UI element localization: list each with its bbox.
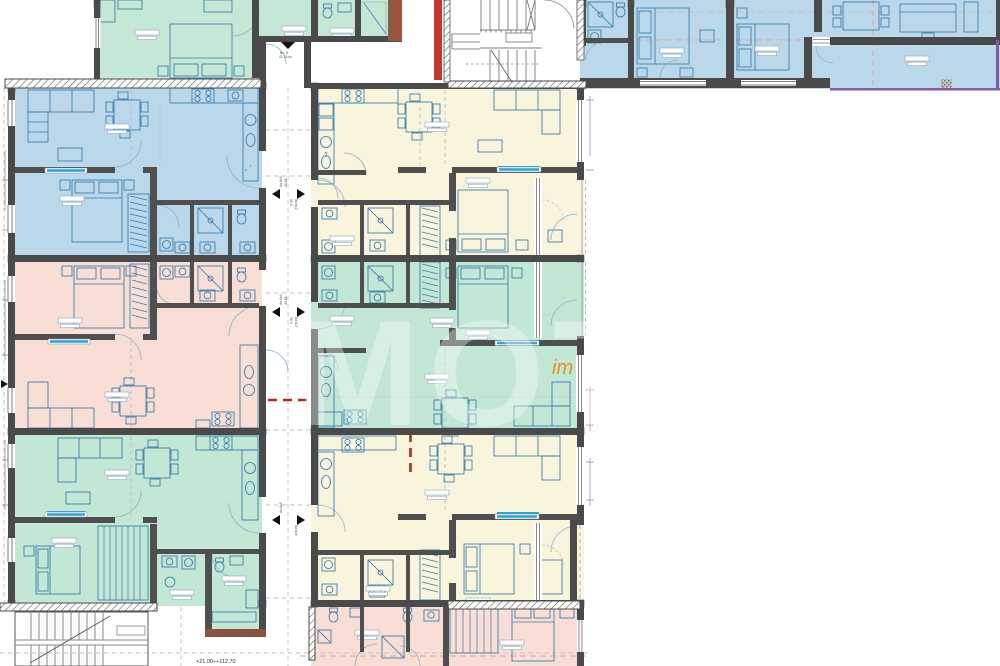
svg-text:41.38 м²: 41.38 м² (279, 55, 293, 59)
svg-text:Ап.№2: Ап.№2 (294, 199, 298, 210)
svg-text:MOT: MOT (295, 289, 652, 457)
svg-text:Ап.№9: Ап.№9 (294, 525, 298, 536)
svg-text:+21.00÷+112.70: +21.00÷+112.70 (196, 659, 236, 665)
svg-text:Ап.№8: Ап.№8 (279, 502, 283, 513)
svg-text:im: im (552, 357, 573, 379)
svg-text:Ап.№5: Ап.№5 (279, 176, 283, 187)
svg-text:43.84: 43.84 (284, 178, 288, 187)
svg-text:56.4: 56.4 (289, 199, 293, 206)
svg-text:56.4: 56.4 (289, 317, 293, 324)
svg-text:Ап.№6: Ап.№6 (279, 294, 283, 305)
svg-text:43.84: 43.84 (284, 296, 288, 305)
